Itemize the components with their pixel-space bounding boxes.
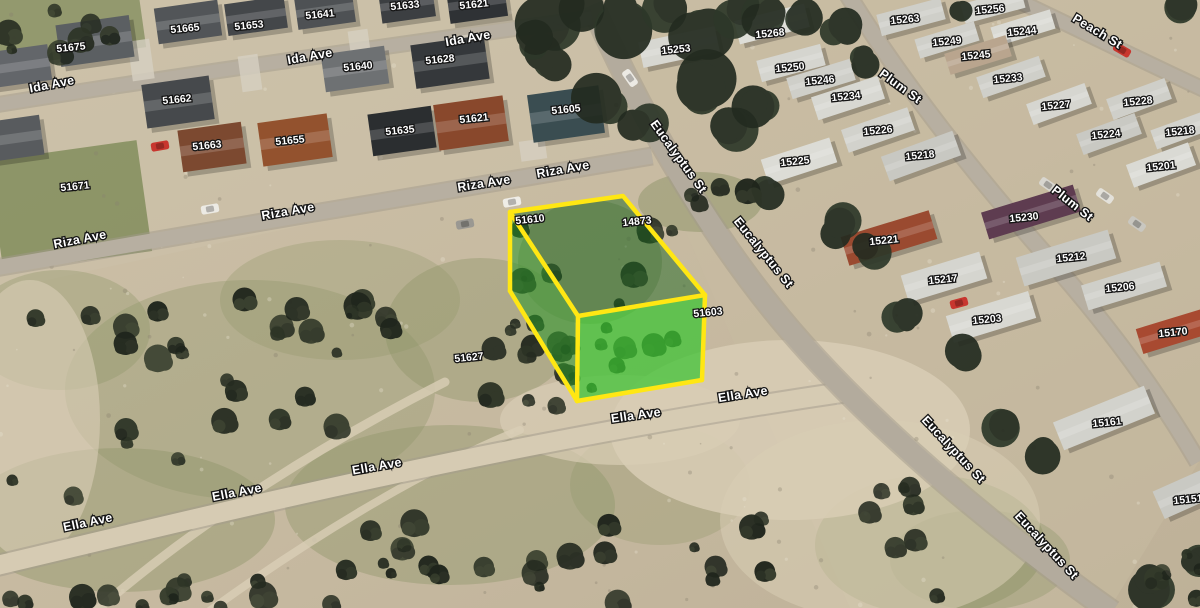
satellite-canvas[interactable]: Ida AveIda AveIda AveRiza AveRiza AveRiz… <box>0 0 1200 608</box>
aerial-map-view[interactable]: Ida AveIda AveIda AveRiza AveRiza AveRiz… <box>0 0 1200 608</box>
tree <box>981 409 1019 447</box>
parcel-edge <box>577 316 578 401</box>
